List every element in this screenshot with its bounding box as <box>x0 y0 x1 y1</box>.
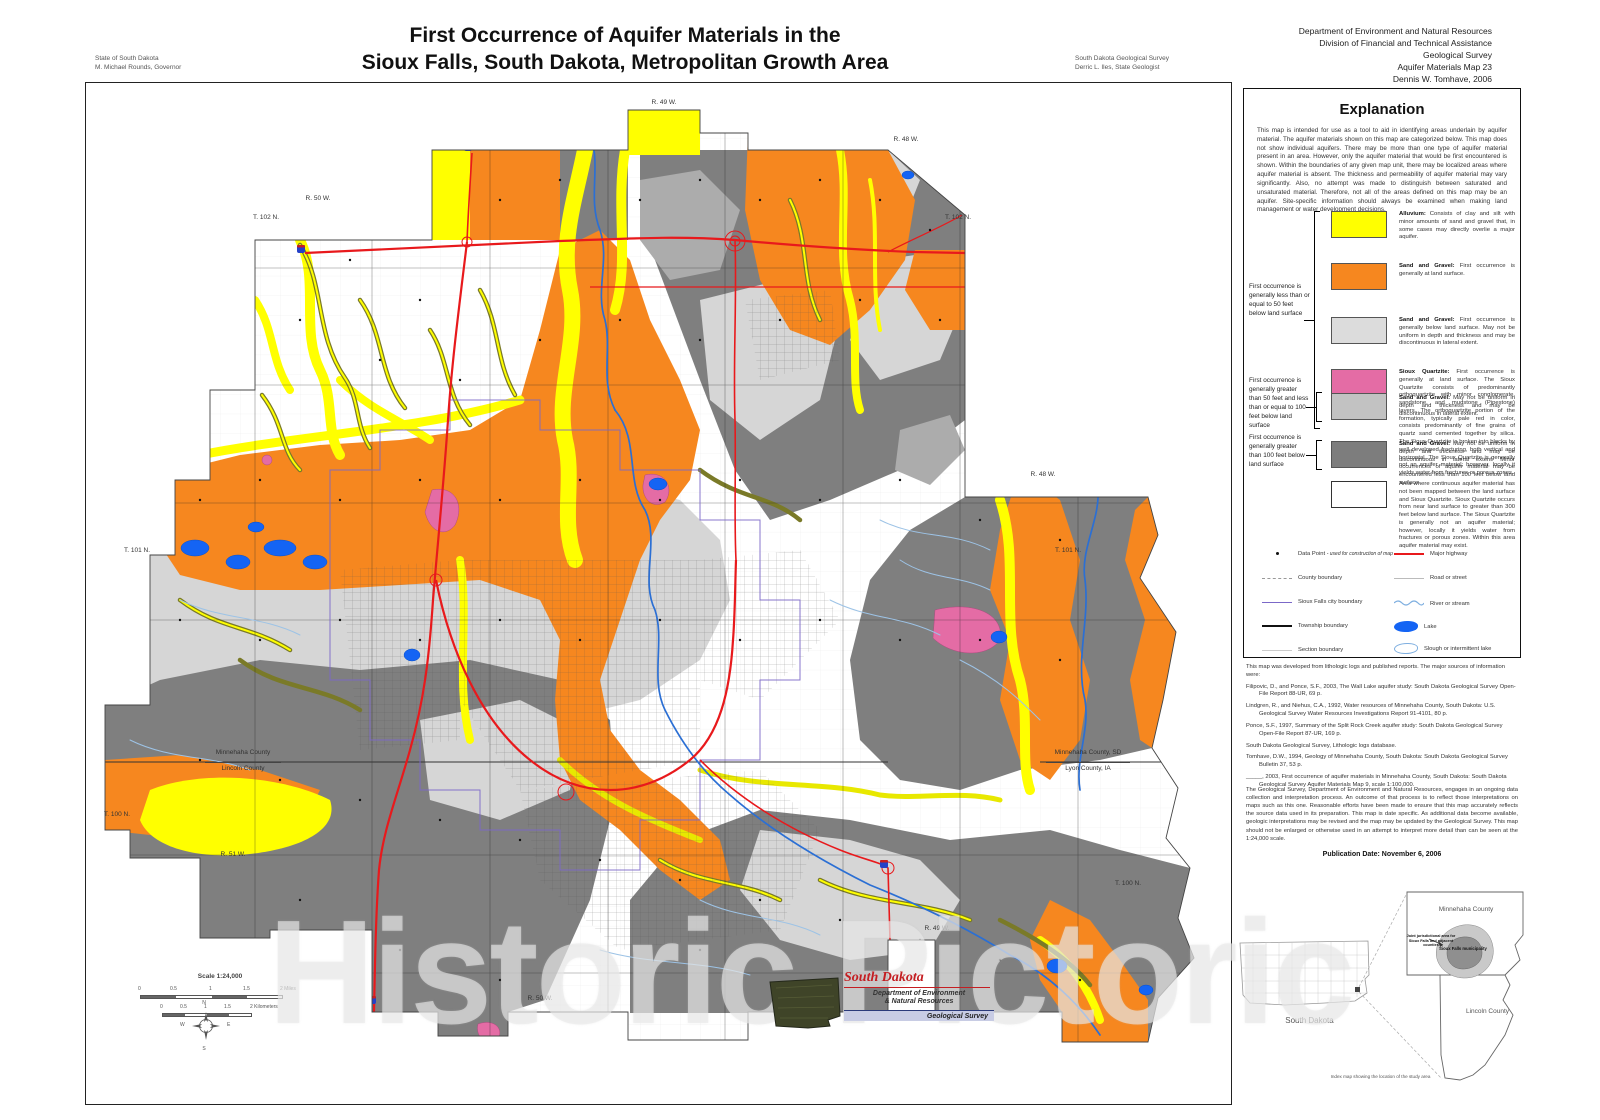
logo-band: Geological Survey <box>844 1010 994 1021</box>
governor-block: State of South Dakota M. Michael Rounds,… <box>95 55 181 73</box>
scale-km-tick: 1.5 <box>224 1004 231 1010</box>
map-sheet: State of South Dakota M. Michael Rounds,… <box>0 0 1600 1120</box>
compass-s: S <box>202 1046 205 1052</box>
map-edge-label-r50w-s: R. 50 W. <box>528 995 553 1002</box>
map-layers <box>85 82 1232 1105</box>
legend-swatch-sioux-quartzite <box>1331 369 1387 396</box>
city-boundary-icon <box>1262 602 1292 603</box>
index-state-label: South Dakota <box>1262 1016 1357 1026</box>
south-dakota-state-shape-icon <box>768 976 842 1030</box>
explanation-intro: This map is intended for use as a tool t… <box>1257 127 1507 215</box>
explanation-title: Explanation <box>1244 101 1520 118</box>
legend-swatch-alluvium <box>1331 211 1387 238</box>
township-boundary-icon <box>1262 625 1292 627</box>
publication-date: Publication Date: November 6, 2006 <box>1243 851 1521 858</box>
map-edge-label-r51w-s: R. 51 W. <box>221 851 246 858</box>
reference: Ponce, S.F., 1997, Summary of the Split … <box>1246 723 1518 739</box>
river-icon <box>1394 599 1424 609</box>
legend-row-city-boundary: Sioux Falls city boundary <box>1262 599 1362 605</box>
state-line: State of South Dakota <box>95 55 181 64</box>
legend-swatch-unmapped <box>1331 481 1387 508</box>
map-edge-label-r49w-s: R. 49 W. <box>925 925 950 932</box>
compass-n: N <box>202 1000 206 1006</box>
legend-group1-label: First occurrence is generally less than … <box>1249 283 1311 319</box>
reference: South Dakota Geological Survey, Litholog… <box>1246 743 1518 751</box>
legend-group2-label: First occurrence is generally greater th… <box>1249 377 1309 431</box>
scale-mile-tick: 2 Miles <box>280 986 296 992</box>
legend-row-river: River or stream <box>1394 599 1470 609</box>
data-point-icon <box>1262 551 1292 557</box>
county-label-lincoln: Lincoln County <box>222 765 265 772</box>
road-icon <box>1394 578 1424 579</box>
index-lincoln-label: Lincoln County <box>1445 1008 1530 1016</box>
county-label-lyon-ia: Lyon County, IA <box>1065 765 1111 772</box>
legend-item-alluvium: Alluvium: Consists of clay and silt with… <box>1399 211 1515 242</box>
section-boundary-icon <box>1262 650 1292 651</box>
county-label-minnehaha-sd: Minnehaha County, SD <box>1055 749 1122 756</box>
survey-block: South Dakota Geological Survey Derric L.… <box>1075 55 1169 73</box>
major-highway-icon <box>1394 553 1424 555</box>
sources-block: This map was developed from lithologic l… <box>1246 664 1518 790</box>
map-edge-label-r49w-top: R. 49 W. <box>652 99 677 106</box>
logo-script-text: South Dakota <box>844 970 924 986</box>
legend-row-section-boundary: Section boundary <box>1262 647 1343 653</box>
map-edge-label-r48w-ne: R. 48 W. <box>894 136 919 143</box>
scale-title: Scale 1:24,000 <box>198 973 242 980</box>
map-edge-label-t101n-e: T. 101 N. <box>1055 547 1081 554</box>
logo-dept-text: Department of Environment & Natural Reso… <box>844 990 994 1006</box>
lake-icon <box>1394 621 1418 632</box>
legend-item-sand-gravel-surface: Sand and Gravel: First occurrence is gen… <box>1399 263 1515 279</box>
reference: Tomhave, D.W., 1994, Geology of Minnehah… <box>1246 754 1518 770</box>
scale-mile-tick: 1.5 <box>243 986 250 992</box>
county-divider-left <box>205 762 281 763</box>
legend-group3-bracket <box>1316 440 1322 470</box>
compass-w: W <box>180 1022 185 1028</box>
compass-e: E <box>227 1022 230 1028</box>
scale-km-tick: 0.5 <box>180 1004 187 1010</box>
legend-swatch-sand-gravel-below <box>1331 317 1387 344</box>
legend-swatch-sand-gravel-100 <box>1331 441 1387 468</box>
legend-row-township-boundary: Township boundary <box>1262 623 1348 629</box>
legend-group2-bracket <box>1316 392 1322 422</box>
explanation-panel: Explanation This map is intended for use… <box>1243 88 1521 658</box>
map-edge-label-r48w-e: R. 48 W. <box>1031 471 1056 478</box>
page-title: First Occurrence of Aquifer Materials in… <box>300 22 950 77</box>
scale-mile-tick: 0 <box>138 986 141 992</box>
logo-underline <box>844 987 990 988</box>
slough-icon <box>1394 643 1418 654</box>
map-edge-label-t100n-e: T. 100 N. <box>1115 880 1141 887</box>
scale-mile-tick: 1 <box>209 986 212 992</box>
map-edge-label-r50w-nw: R. 50 W. <box>306 195 331 202</box>
legend-row-major-highway: Major highway <box>1394 551 1467 557</box>
county-boundary-icon <box>1262 578 1292 579</box>
sources-intro: This map was developed from lithologic l… <box>1246 664 1518 680</box>
scale-km-tick: 0 <box>160 1004 163 1010</box>
map-edge-label-t100n-w: T. 100 N. <box>104 811 130 818</box>
agency-logo: South Dakota Department of Environment &… <box>768 972 996 1036</box>
map-edge-label-t102n-w: T. 102 N. <box>253 214 279 221</box>
index-joint-area-label: Joint jurisdictional area for Sioux Fall… <box>1406 934 1456 948</box>
scale-mile-tick: 0.5 <box>170 986 177 992</box>
map-edge-label-t101n-w: T. 101 N. <box>124 547 150 554</box>
scale-bar-miles <box>140 995 283 999</box>
legend-row-road: Road or street <box>1394 575 1467 581</box>
governor-line: M. Michael Rounds, Governor <box>95 64 181 73</box>
legend-group3-label: First occurrence is generally greater th… <box>1249 434 1309 470</box>
legend-row-slough: Slough or intermittent lake <box>1394 643 1491 654</box>
legend-row-lake: Lake <box>1394 621 1437 632</box>
legend-row-data-point: Data Point - used for construction of ma… <box>1262 551 1393 557</box>
reference: Filipovic, D., and Ponce, S.F., 2003, Th… <box>1246 684 1518 700</box>
county-divider-right <box>1046 762 1130 763</box>
agency-block: Department of Environment and Natural Re… <box>1180 26 1492 85</box>
county-label-minnehaha: Minnehaha County <box>216 749 271 756</box>
disclaimer-text: The Geological Survey, Department of Env… <box>1246 786 1518 843</box>
index-map-caption: Index map showing the location of the st… <box>1318 1074 1443 1080</box>
legend-swatch-sand-gravel-surface <box>1331 263 1387 290</box>
legend-item-sand-gravel-50-100: Sand and Gravel: May not be uniform in d… <box>1399 395 1515 418</box>
legend-swatch-sand-gravel-50-100 <box>1331 393 1387 420</box>
aquifer-map-svg <box>85 82 1232 1105</box>
index-minnehaha-label: Minnehaha County <box>1420 906 1512 914</box>
map-edge-label-t102n-e: T. 102 N. <box>945 214 971 221</box>
reference: Lindgren, R., and Niehus, C.A., 1992, Wa… <box>1246 703 1518 719</box>
legend-item-sand-gravel-below: Sand and Gravel: First occurrence is gen… <box>1399 317 1515 348</box>
legend-item-unmapped: Area where continuous aquifer material h… <box>1399 481 1515 551</box>
legend-row-county-boundary: County boundary <box>1262 575 1342 581</box>
scale-km-tick: 2 Kilometers <box>250 1004 278 1010</box>
compass-rose-icon <box>188 1008 224 1044</box>
